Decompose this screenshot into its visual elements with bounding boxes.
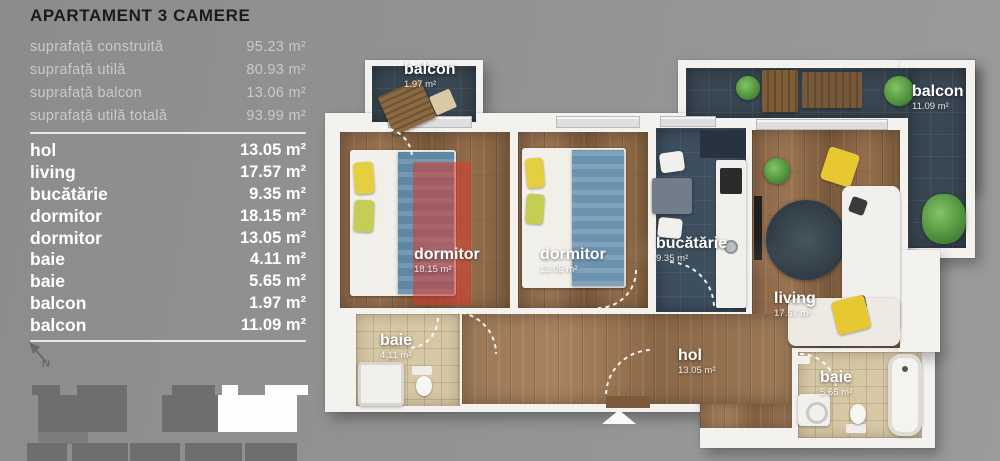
divider-line (30, 340, 306, 342)
toilet-tank (412, 366, 432, 375)
door-arc (668, 260, 716, 308)
wall-right-side (898, 250, 940, 352)
siteplan-block-highlight (222, 385, 238, 395)
room-name: balcon (912, 84, 964, 101)
siteplan-block (72, 443, 128, 461)
room-name: bucătărie (656, 236, 727, 253)
summary-value: 95.23 m² (246, 39, 306, 55)
label-baie-1: baie 4.11 m² (380, 333, 412, 361)
deck-table (802, 72, 862, 108)
pillow (353, 161, 375, 194)
room-list-row: baie 4.11 m² (30, 249, 306, 271)
room-area: 18.15 m² (240, 207, 306, 226)
page-title: APARTAMENT 3 CAMERE (30, 6, 330, 26)
pillow (525, 157, 546, 188)
toilet-tank (846, 424, 866, 433)
room-area: 1.97 m² (249, 294, 306, 313)
room-area: 11.09 m² (912, 102, 964, 112)
entrance-arrow-icon (602, 410, 636, 424)
toilet-bowl (416, 376, 432, 396)
siteplan-block (130, 443, 180, 461)
shower (358, 362, 404, 406)
window-living-balcony (756, 119, 888, 130)
kitchen-chair (659, 150, 686, 173)
room-name: baie (30, 249, 65, 270)
pillow (525, 193, 545, 224)
summary-label: suprafață construită (30, 39, 163, 55)
plant (922, 194, 966, 244)
summary-row: suprafață balcon 13.06 m² (30, 82, 306, 104)
door-arc (452, 310, 498, 356)
summary-value: 93.99 m² (246, 108, 306, 124)
siteplan-block (172, 385, 215, 395)
label-balcon-large: balcon 11.09 m² (912, 84, 964, 112)
room-area: 13.05 m² (240, 229, 306, 248)
north-label: N (42, 358, 50, 370)
rug (766, 200, 846, 280)
room-area: 17.57 m² (240, 163, 306, 182)
summary-label: suprafață utilă totală (30, 108, 167, 124)
compass-north: N (26, 340, 62, 374)
washer-door (806, 402, 828, 424)
room-name: baie (820, 370, 852, 387)
room-name: balcon (30, 293, 86, 314)
room-name: dormitor (30, 206, 102, 227)
room-list-row: hol 13.05 m² (30, 140, 306, 162)
siteplan-block (77, 385, 127, 395)
siteplan-block-highlight (265, 385, 308, 395)
room-area: 11.09 m² (241, 316, 306, 335)
label-baie-2: baie 5.65 m² (820, 370, 852, 398)
label-bucatarie: bucătărie 9.35 m² (656, 236, 727, 264)
label-dormitor-2: dormitor 13.05 m² (540, 247, 606, 275)
room-area: 4.11 m² (380, 351, 412, 361)
siteplan-block-highlight (218, 395, 297, 432)
siteplan-block (245, 443, 297, 461)
room-name: living (774, 291, 816, 308)
room-name: living (30, 162, 76, 183)
siteplan-block (32, 385, 60, 395)
room-name: hol (30, 140, 56, 161)
room-area: 18.15 m² (414, 265, 480, 275)
kitchen-cabinet (700, 130, 746, 158)
room-name: balcon (404, 62, 456, 79)
siteplan-block (185, 443, 242, 461)
summary-value: 13.06 m² (246, 85, 306, 101)
room-area: 13.05 m² (540, 265, 606, 275)
entrance-door (606, 396, 650, 408)
plant (884, 76, 914, 106)
room-name: bucătărie (30, 184, 108, 205)
kitchen-hob (720, 168, 742, 194)
room-area: 13.05 m² (240, 141, 306, 160)
room-name: dormitor (30, 228, 102, 249)
summary-row: suprafață construită 95.23 m² (30, 36, 306, 58)
kitchen-table (652, 178, 692, 214)
plant (764, 158, 790, 184)
room-list-row: bucătărie 9.35 m² (30, 184, 306, 206)
label-hol: hol 13.05 m² (678, 348, 716, 376)
summary-row: suprafață utilă 80.93 m² (30, 59, 306, 81)
room-list-row: dormitor 13.05 m² (30, 227, 306, 249)
window-bucatarie-balcony (660, 116, 716, 127)
toilet-bowl (850, 404, 866, 424)
siteplan-block (162, 395, 218, 432)
siteplan-block (27, 443, 67, 461)
divider-line (30, 132, 306, 134)
room-area: 9.35 m² (656, 254, 727, 264)
room-list-row: living 17.57 m² (30, 162, 306, 184)
deck-lounger (762, 70, 798, 112)
pillow (353, 199, 375, 232)
door-arc (604, 348, 652, 396)
room-list-row: balcon 1.97 m² (30, 293, 306, 315)
tv (754, 196, 762, 260)
plant (736, 76, 760, 100)
floor-hol-entry (700, 404, 792, 428)
summary-label: suprafață balcon (30, 85, 142, 101)
summary-row: suprafață utilă totală 93.99 m² (30, 105, 306, 127)
room-name: dormitor (540, 247, 606, 264)
room-list-row: dormitor 18.15 m² (30, 205, 306, 227)
room-name: balcon (30, 315, 86, 336)
label-dormitor-1: dormitor 18.15 m² (414, 247, 480, 275)
room-name: baie (30, 271, 65, 292)
bathtub-drain (902, 366, 908, 372)
room-name: dormitor (414, 247, 480, 264)
label-balcon-small: balcon 1.97 m² (404, 62, 456, 90)
window-dormitor-2 (556, 116, 640, 128)
room-area: 9.35 m² (249, 185, 306, 204)
room-list-row: balcon 11.09 m² (30, 314, 306, 336)
room-area: 17.57 m² (774, 309, 816, 319)
room-area: 1.97 m² (404, 80, 456, 90)
room-name: baie (380, 333, 412, 350)
room-area: 4.11 m² (250, 250, 306, 269)
siteplan-block (38, 395, 127, 432)
summary-label: suprafață utilă (30, 62, 126, 78)
room-area: 5.65 m² (249, 272, 306, 291)
room-list-row: baie 5.65 m² (30, 271, 306, 293)
room-area: 13.05 m² (678, 366, 716, 376)
room-name: hol (678, 348, 716, 365)
room-area: 5.65 m² (820, 388, 852, 398)
summary-value: 80.93 m² (246, 62, 306, 78)
red-highlight-overlay (413, 162, 471, 305)
bed-sheet (376, 152, 400, 294)
door-arc (380, 126, 414, 160)
label-living: living 17.57 m² (774, 291, 816, 319)
